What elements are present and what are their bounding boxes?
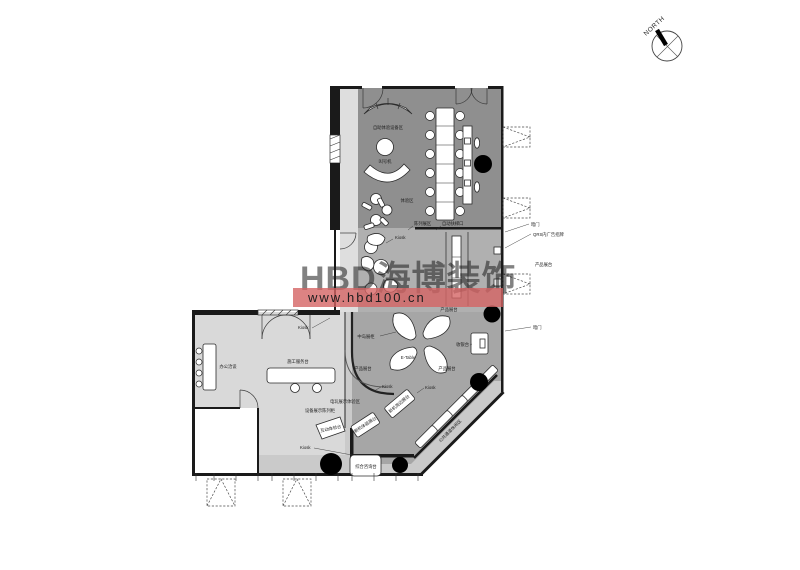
label-kiosk-5: Kiosk <box>300 445 311 450</box>
wall-top-left-b <box>330 163 340 230</box>
north-compass: NORTH <box>643 15 682 61</box>
floor-plan-drawing: 自助体验设备区 叫号机 体验区 陈列展区 自动扶梯口 暗门 QRS内广告招牌 产… <box>0 0 800 570</box>
label-equipment-rack: 设备展示陈列柜 <box>305 407 336 414</box>
wall-outer-bottom <box>192 473 423 476</box>
label-kiosk-3: Kiosk <box>382 384 393 389</box>
column-2 <box>484 306 501 323</box>
watermark: HBD海博装饰 www.hbd100.cn <box>293 260 517 307</box>
label-hidden-door-top: 暗门 <box>531 221 540 228</box>
wall-hatch-left <box>330 135 340 163</box>
counter-unit-3 <box>465 180 471 186</box>
desk-chair-2 <box>313 384 322 393</box>
label-kiosk-1: Kiosk <box>395 235 406 240</box>
label-product-display-right: 产品展台 <box>438 365 455 372</box>
escalator-bottom-1 <box>207 479 235 506</box>
wall-top-c <box>488 86 503 89</box>
wall-top-left-a <box>330 86 340 135</box>
escalator-right-1 <box>503 127 530 147</box>
label-product-display-wall: 产品展台 <box>535 261 552 268</box>
label-product-display-left: 产品展台 <box>354 365 371 372</box>
wall-retail-left <box>350 428 354 458</box>
wall-showroom-bottom <box>415 227 503 230</box>
label-experience-zone: 体验区 <box>401 197 415 204</box>
wall-office-top-a <box>192 310 258 315</box>
label-queue-machine: 叫号机 <box>379 158 393 165</box>
column-3 <box>470 373 488 391</box>
column-5 <box>392 457 408 473</box>
label-cashier: 收银台 <box>456 341 469 348</box>
label-display-zone: 陈列展区 <box>414 220 432 227</box>
wall-top-a <box>330 86 362 89</box>
office-cabinet <box>203 344 216 390</box>
floor-white-room <box>192 408 258 475</box>
service-desk-counter <box>267 368 335 383</box>
label-info-desk: 综合咨询台 <box>355 463 376 470</box>
label-ad-sign: QRS内广告招牌 <box>533 231 564 238</box>
wall-shelf-1 <box>494 247 501 254</box>
cashier-desk <box>471 333 488 354</box>
wall-outer-left <box>192 310 195 475</box>
wall-top-b <box>382 86 455 89</box>
round-table <box>377 139 394 156</box>
column-4 <box>320 453 342 475</box>
label-kiosk-2: Kiosk <box>298 325 309 330</box>
desk-chair-1 <box>291 384 300 393</box>
watermark-url-text: www.hbd100.cn <box>307 290 426 305</box>
column-1 <box>474 155 492 173</box>
escalator-right-2 <box>503 198 530 218</box>
label-office-meeting: 办公洽谈 <box>219 363 237 370</box>
display-blob-1 <box>367 233 385 245</box>
label-island-display: 中岛展柜 <box>357 333 375 340</box>
wall-office-top-b <box>298 310 340 315</box>
cashier-terminal <box>480 339 485 348</box>
label-self-service: 自助体验设备区 <box>373 124 404 131</box>
stool-1 <box>474 138 479 148</box>
compass-north-label: NORTH <box>643 15 667 37</box>
escalator-bottom-2 <box>283 479 311 506</box>
label-escalator-entry: 自动扶梯口 <box>442 220 463 227</box>
label-kiosk-4: Kiosk <box>425 385 436 390</box>
label-game-display: 电玩展示体验区 <box>330 398 361 405</box>
label-product-display-top: 产品展台 <box>440 306 457 313</box>
wall-hatch-left-lines <box>330 135 340 160</box>
counter-unit-1 <box>465 138 471 144</box>
counter-unit-2 <box>465 160 471 166</box>
stool-2 <box>474 182 479 192</box>
label-hidden-door-bottom: 暗门 <box>533 324 542 331</box>
label-service-desk: 施工服务台 <box>287 358 308 365</box>
label-e-table: E-Table <box>401 355 416 360</box>
floor-plan-page: 自助体验设备区 叫号机 体验区 陈列展区 自动扶梯口 暗门 QRS内广告招牌 产… <box>0 0 800 570</box>
